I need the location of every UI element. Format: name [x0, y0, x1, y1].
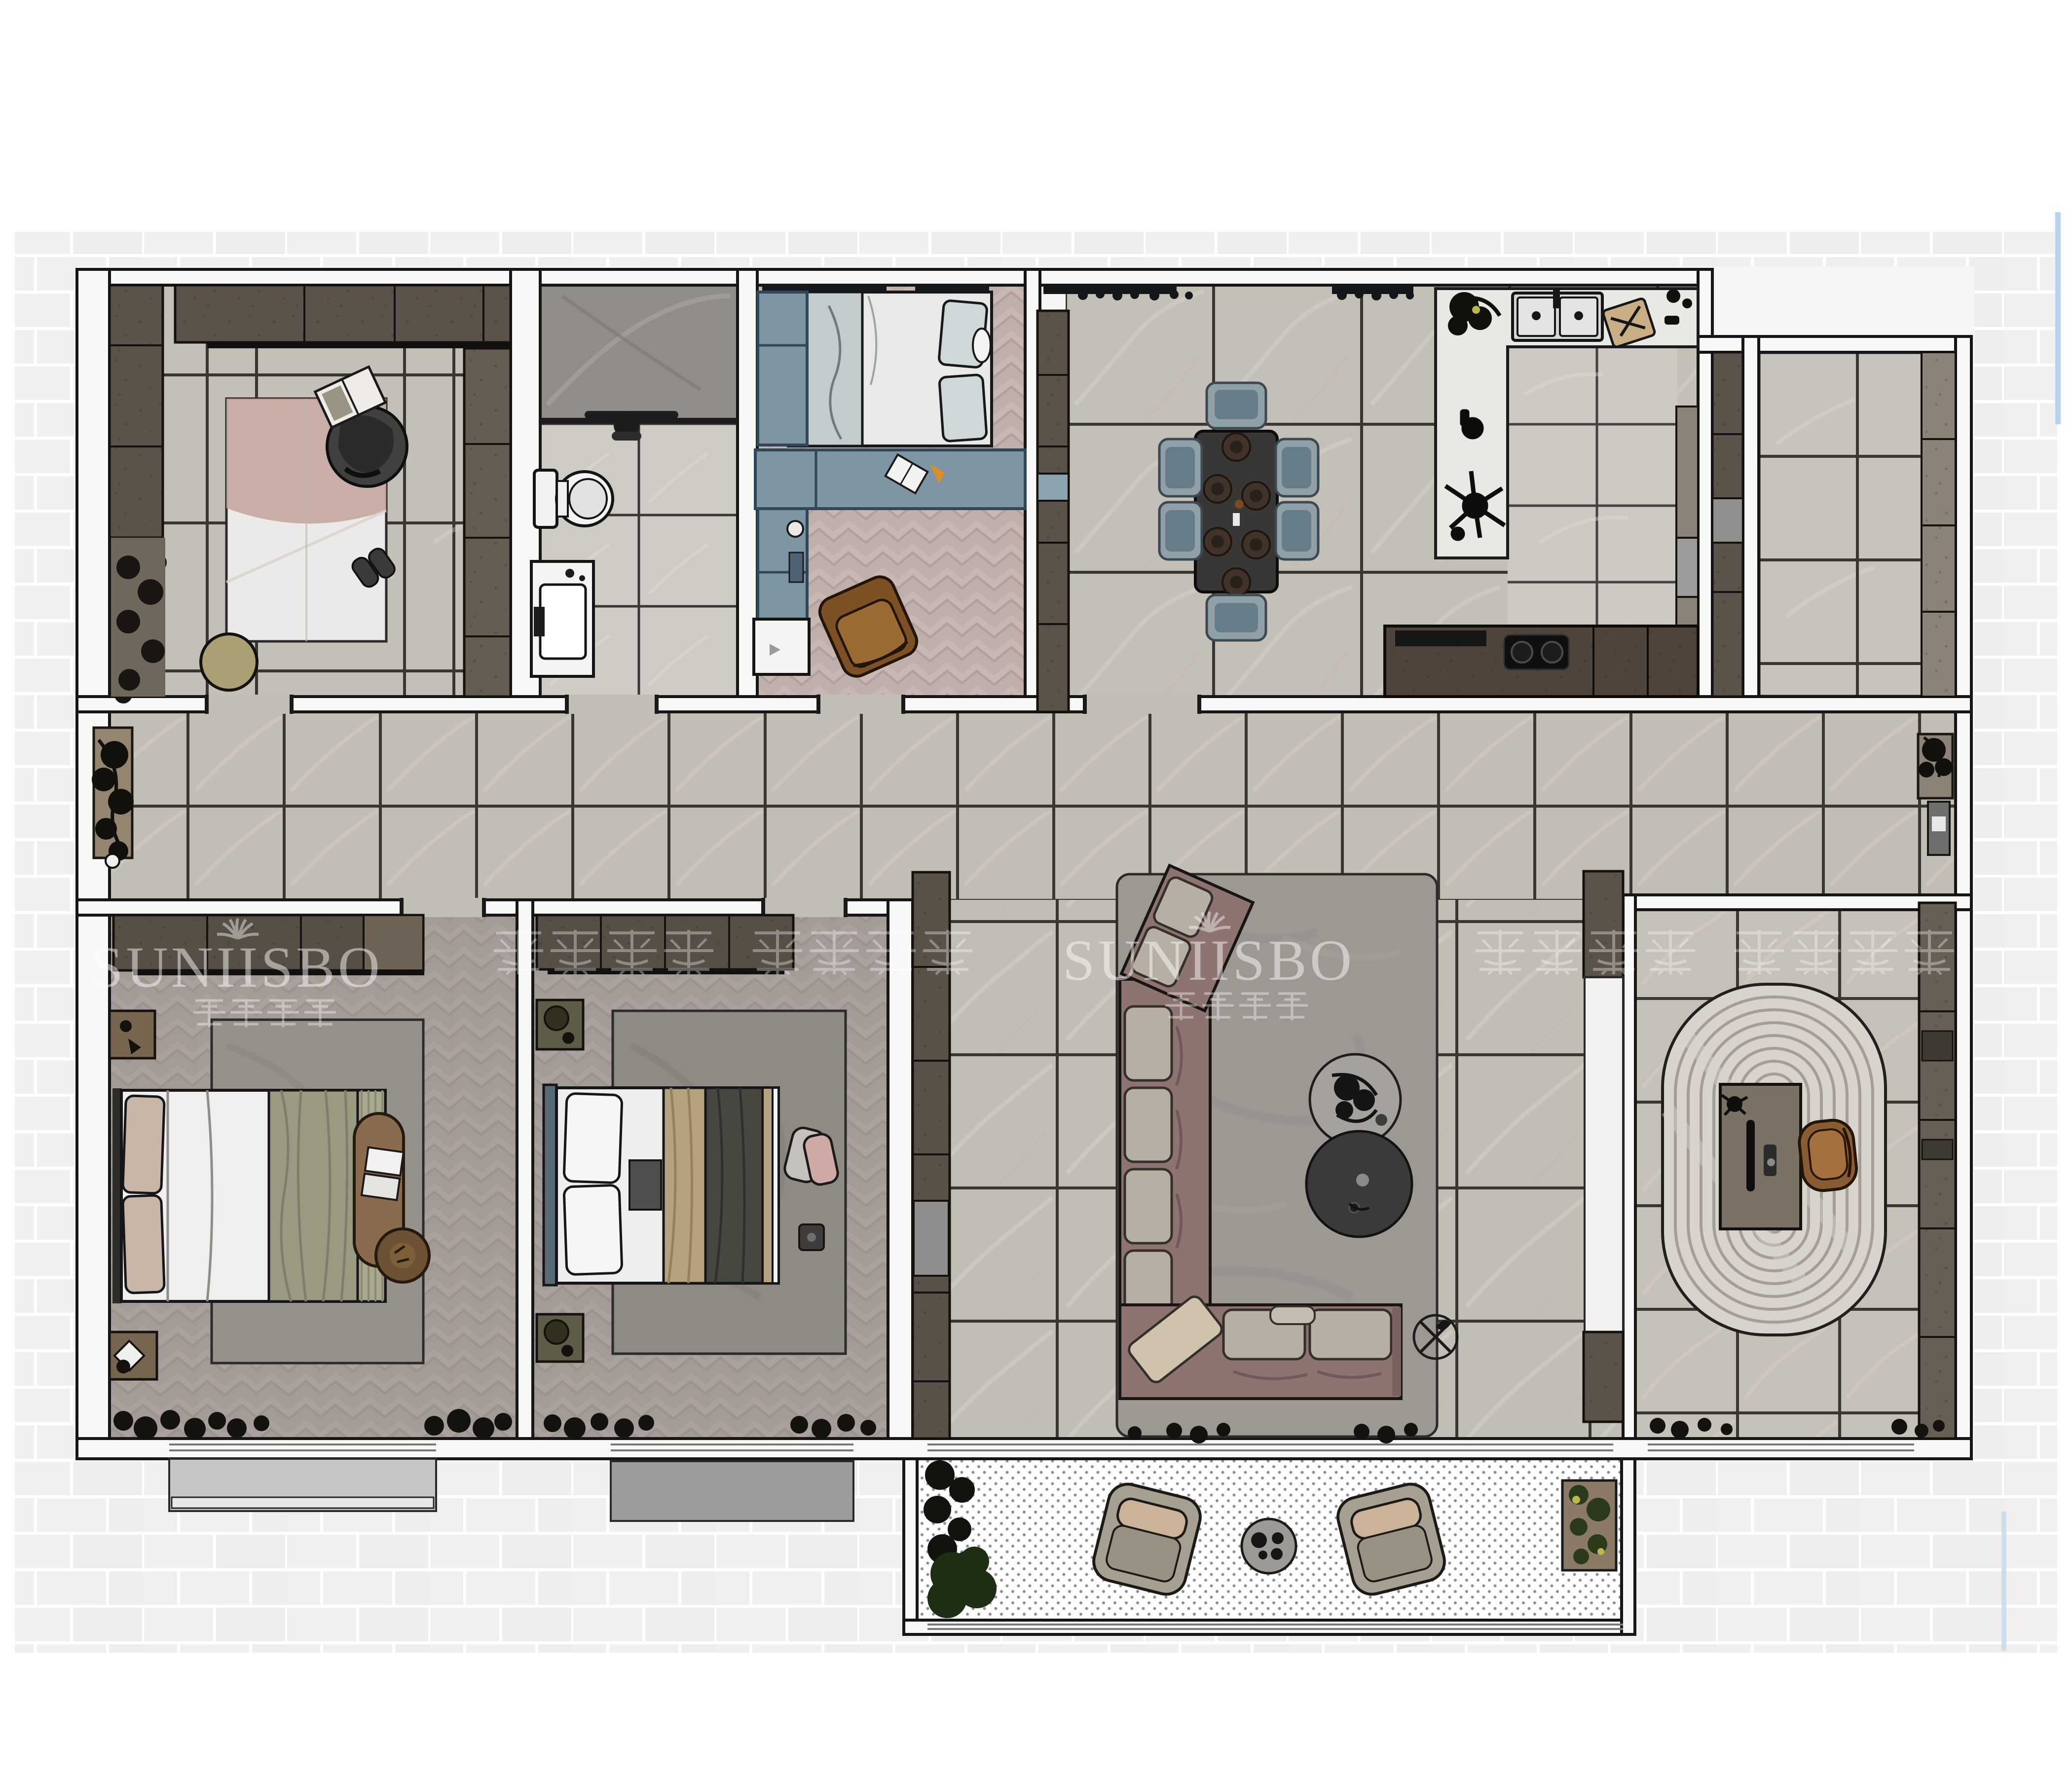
svg-text:SUNIISBO: SUNIISBO: [91, 935, 383, 999]
svg-text:SUNIISBO: SUNIISBO: [1063, 928, 1355, 993]
